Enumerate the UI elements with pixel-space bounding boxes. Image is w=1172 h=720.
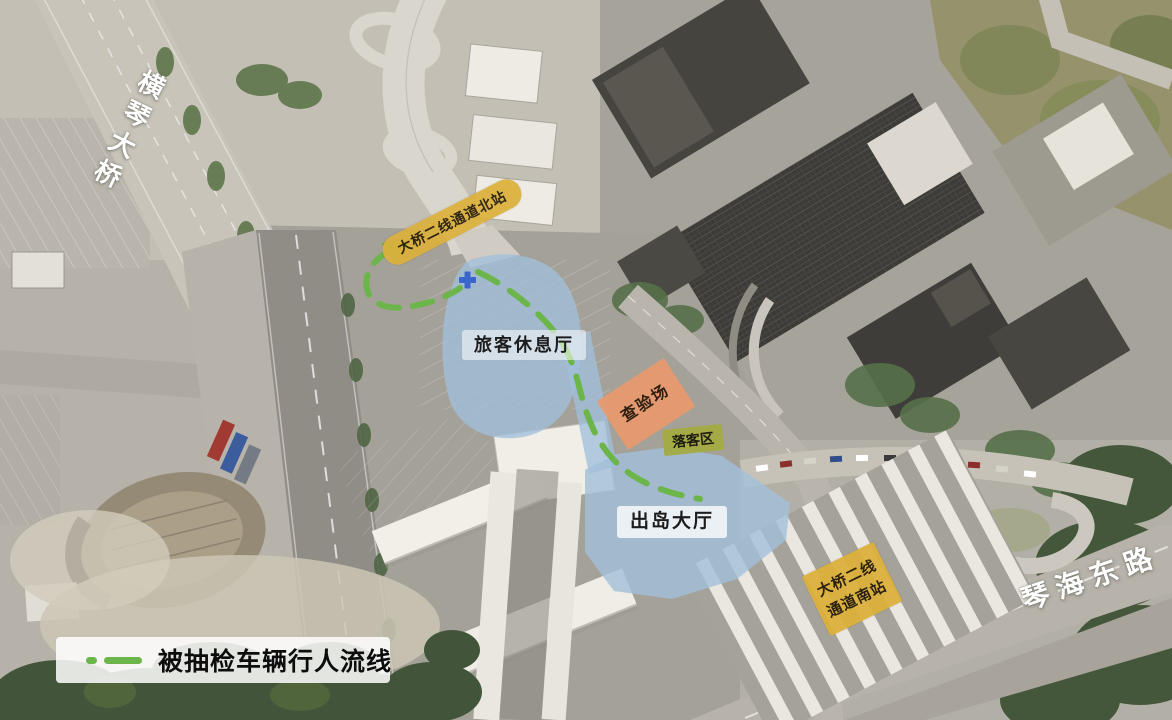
map-canvas xyxy=(0,0,1172,720)
legend: 被抽检车辆行人流线 xyxy=(56,637,390,683)
exit-hall-label: 出岛大厅 xyxy=(617,506,727,538)
legend-label: 被抽检车辆行人流线 xyxy=(158,642,392,678)
flow-line-legend-icon xyxy=(86,657,142,664)
rest-hall-label: 旅客休息厅 xyxy=(462,330,586,360)
satellite-map: 横琴大桥 大桥二线通道北站 旅客休息厅 查验场 落客区 出岛大厅 大桥二线 通道… xyxy=(0,0,1172,720)
